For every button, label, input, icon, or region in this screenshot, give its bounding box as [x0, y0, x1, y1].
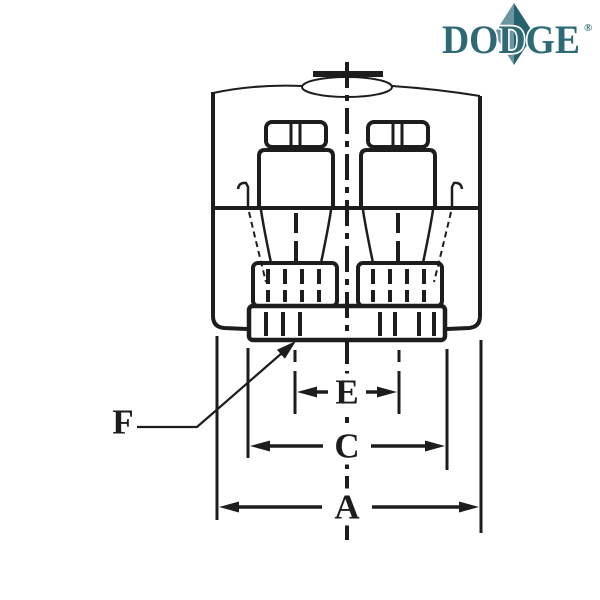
- wall-right: [447, 96, 480, 329]
- registered-trademark: ®: [584, 22, 592, 34]
- nut-block-left-hidden-lines: [268, 269, 319, 302]
- bolt-left-cap-facets: [291, 124, 300, 145]
- diagram-page: DODGE ®: [0, 0, 600, 600]
- dimension-label-a: A: [330, 489, 363, 526]
- nut-block-right-hidden-lines: [373, 269, 424, 302]
- dodge-logo: DODGE ®: [442, 3, 592, 65]
- arrowhead-a-right: [459, 502, 479, 513]
- arrowhead-c-left: [250, 441, 270, 452]
- dimension-label-f: F: [108, 404, 137, 441]
- bolt-right-cap: [368, 122, 428, 147]
- dimension-label-c: C: [330, 428, 363, 465]
- nut-block-right: [358, 263, 442, 306]
- bolt-left-cap: [266, 122, 326, 147]
- arrowhead-e-right: [377, 387, 397, 398]
- arrowhead-c-right: [425, 441, 445, 452]
- leader-line-f: [137, 353, 282, 427]
- nut-block-left: [253, 263, 337, 306]
- arrowhead-e-left: [297, 387, 317, 398]
- base-plate-hidden-lines: [266, 312, 434, 336]
- bearing-dimension-drawing: DODGE ®: [0, 0, 600, 600]
- top-profile-left: [213, 86, 302, 93]
- dimension-label-e: E: [331, 374, 362, 411]
- bolt-right-head: [361, 150, 435, 208]
- top-profile-right: [392, 86, 480, 96]
- bolt-left-head: [259, 150, 333, 208]
- bolt-right: [361, 122, 435, 263]
- hook-right: [452, 183, 462, 208]
- bolt-right-cap-facets: [393, 124, 402, 145]
- arrowhead-a-left: [219, 502, 239, 513]
- wall-left: [213, 92, 247, 329]
- dimension-lines: [137, 336, 481, 533]
- dodge-logo-text: DODGE: [442, 17, 580, 62]
- bolt-left: [259, 122, 333, 263]
- hook-left: [238, 183, 248, 208]
